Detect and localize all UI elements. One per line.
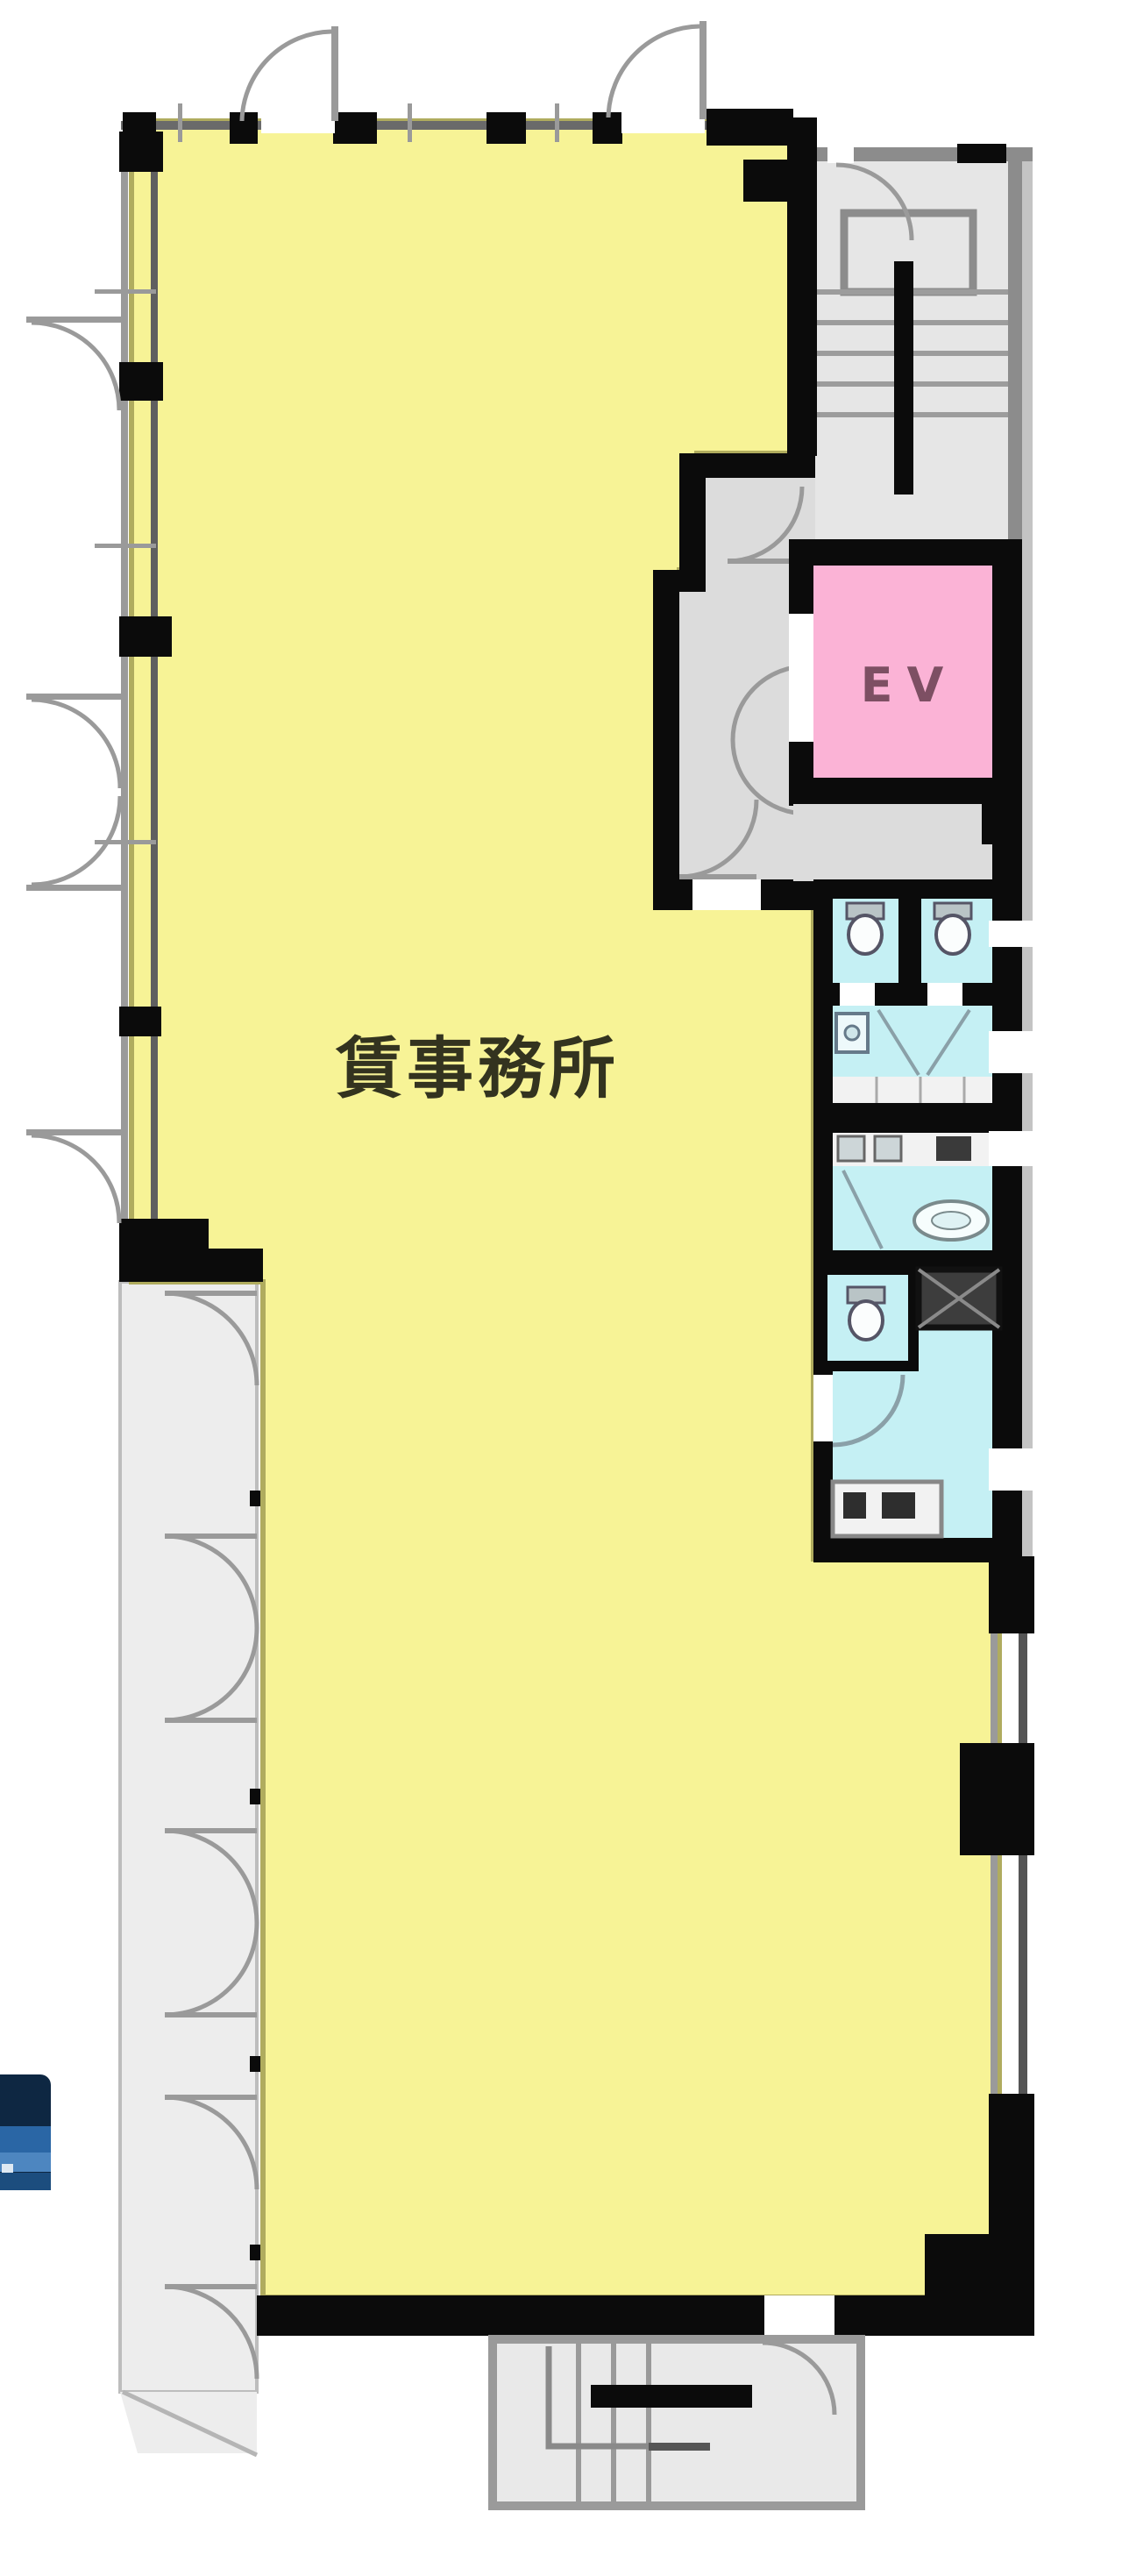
bottom-door-opening	[764, 2295, 834, 2338]
toilet-icon	[848, 1287, 884, 1340]
elevator: EV	[789, 539, 1022, 881]
restroom-block	[813, 879, 1038, 1562]
urinal-icon	[914, 1201, 988, 1240]
pipe-duct	[919, 1270, 999, 1327]
stall-door-opening	[927, 983, 962, 1006]
floor-plan-page: 賃事務所	[0, 0, 1122, 2576]
fixture-dark	[936, 1136, 971, 1161]
kitchenette-counter	[833, 1482, 941, 1536]
elevator-door-opening	[789, 614, 813, 742]
top-door-opening-2	[621, 107, 705, 133]
stair-right-wall	[1008, 147, 1022, 570]
toilet-icon	[847, 903, 884, 954]
bottom-section	[257, 2295, 1034, 2506]
office-label-group: 賃事務所	[335, 1029, 620, 1107]
hall-office-door-opening	[692, 879, 761, 910]
map-badge-icon	[0, 2074, 51, 2190]
balcony-floor	[120, 1282, 257, 2392]
bottom-wall	[257, 2295, 1034, 2336]
right-window-line	[1019, 1633, 1027, 1743]
powder-door-opening	[813, 1375, 833, 1441]
toilet-icon	[934, 903, 971, 954]
stair-rail-dark	[649, 2443, 710, 2451]
stair-handrail	[894, 261, 913, 495]
elevator-label-group: EV	[861, 658, 958, 713]
left-wall-outer-line	[121, 132, 128, 1282]
right-window-line	[1019, 1855, 1027, 2094]
elevator-lobby-strip	[793, 804, 995, 881]
top-door-opening-1	[261, 109, 335, 133]
sink-icon	[836, 1014, 868, 1052]
left-window-arcs	[26, 317, 123, 1223]
floor-plan: 賃事務所	[0, 0, 1122, 2576]
right-wall-column	[989, 1556, 1034, 1633]
stall-divider	[898, 879, 921, 983]
office-stair-wall	[787, 117, 817, 456]
right-wall-column	[960, 1743, 1034, 1855]
staircase-top	[802, 144, 1033, 570]
office-room-label: 賃事務所	[335, 1029, 620, 1107]
left-wall-inner-line	[151, 132, 158, 1282]
office-stair-column	[743, 160, 789, 202]
stair-top-column	[957, 144, 1006, 163]
restroom-mid-wall	[813, 1103, 1022, 1133]
right-window-line	[991, 1855, 998, 2094]
elevator-right-wall	[992, 539, 1022, 881]
wash-counter	[833, 1077, 992, 1103]
elevator-label: EV	[861, 658, 958, 713]
sink-icon	[838, 1136, 864, 1161]
top-wall	[121, 21, 796, 146]
top-door-arcs	[242, 21, 707, 121]
staircase-bottom	[493, 2339, 861, 2506]
stair-handrail	[591, 2385, 752, 2408]
right-window-line	[991, 1633, 998, 1743]
sink-icon	[875, 1136, 901, 1161]
stair-door-opening	[827, 146, 854, 163]
balcony	[120, 1282, 262, 2455]
stall-door-opening	[840, 983, 875, 1006]
right-outer-wall-strip	[1020, 149, 1033, 1562]
